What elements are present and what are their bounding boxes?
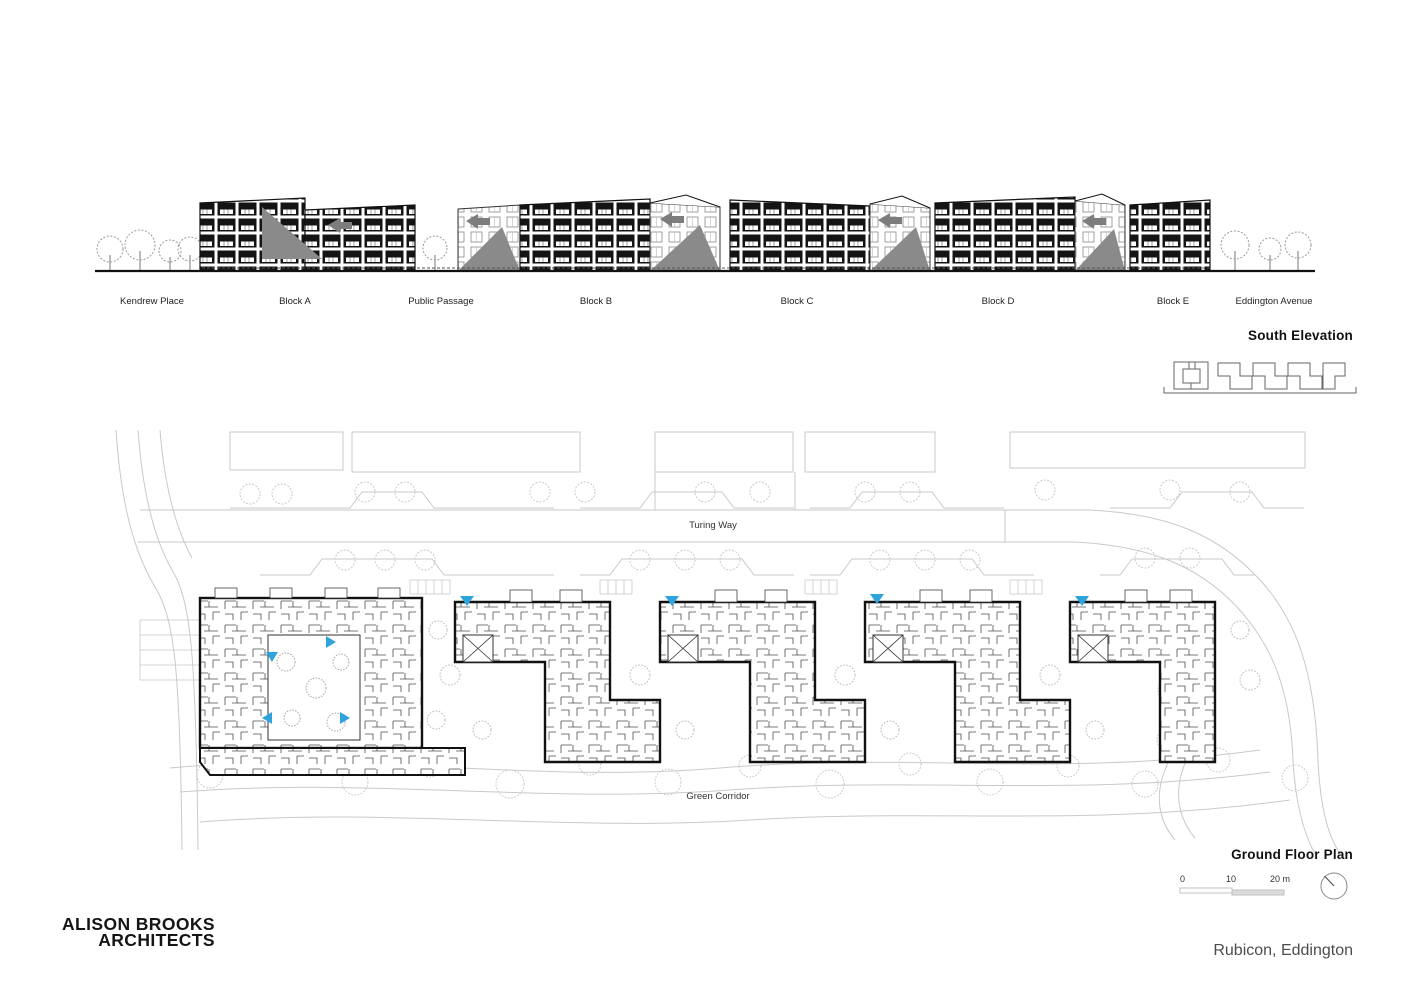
firm-logo: ALISON BROOKS ARCHITECTS bbox=[62, 916, 215, 948]
label-eddington-avenue: Eddington Avenue bbox=[1236, 296, 1313, 307]
north-arrow-icon bbox=[1318, 870, 1350, 902]
scale-tick-20: 20 m bbox=[1270, 874, 1290, 884]
label-kendrew-place: Kendrew Place bbox=[120, 296, 184, 307]
context-verge-north bbox=[230, 480, 1304, 508]
elevation-block-c bbox=[730, 196, 930, 271]
elevation-block-e bbox=[1130, 200, 1210, 271]
key-plan-diagram bbox=[1160, 355, 1360, 399]
project-name: Rubicon, Eddington bbox=[1213, 942, 1353, 960]
label-block-b: Block B bbox=[580, 296, 612, 307]
courtyard bbox=[268, 635, 360, 740]
scale-tick-10: 10 bbox=[1226, 874, 1236, 884]
label-block-d: Block D bbox=[982, 296, 1015, 307]
elevation-trees-left bbox=[97, 230, 202, 271]
label-block-a: Block A bbox=[279, 296, 311, 307]
elevation-block-a bbox=[200, 198, 415, 271]
firm-logo-line2: ARCHITECTS bbox=[62, 932, 215, 948]
label-turing-way: Turing Way bbox=[689, 520, 737, 531]
label-green-corridor: Green Corridor bbox=[686, 791, 749, 802]
south-elevation-drawing bbox=[90, 185, 1320, 285]
context-verge-south bbox=[260, 548, 1254, 575]
label-public-passage: Public Passage bbox=[408, 296, 473, 307]
drawing-sheet: Kendrew Place Block A Public Passage Blo… bbox=[0, 0, 1415, 1000]
context-plots-north bbox=[230, 432, 1305, 472]
ground-floor-plan-title: Ground Floor Plan bbox=[1231, 847, 1353, 862]
scale-bar-graphic bbox=[1178, 887, 1298, 897]
label-block-e: Block E bbox=[1157, 296, 1189, 307]
plan-block-c bbox=[660, 590, 865, 762]
scale-bar: 0 10 20 m bbox=[1178, 874, 1298, 898]
label-block-c: Block C bbox=[781, 296, 814, 307]
plan-block-e bbox=[1070, 590, 1220, 762]
turing-way-road bbox=[138, 472, 1090, 542]
elevation-block-b bbox=[520, 195, 720, 271]
south-elevation-title: South Elevation bbox=[1248, 328, 1353, 343]
elevation-block-d bbox=[935, 194, 1125, 271]
plan-block-b bbox=[455, 590, 660, 762]
plan-block-a bbox=[200, 588, 465, 775]
plan-block-d bbox=[865, 590, 1070, 762]
scale-tick-0: 0 bbox=[1180, 874, 1185, 884]
elevation-link-block bbox=[458, 205, 520, 271]
context-street-west bbox=[116, 430, 198, 850]
elevation-trees-right bbox=[1221, 231, 1311, 271]
